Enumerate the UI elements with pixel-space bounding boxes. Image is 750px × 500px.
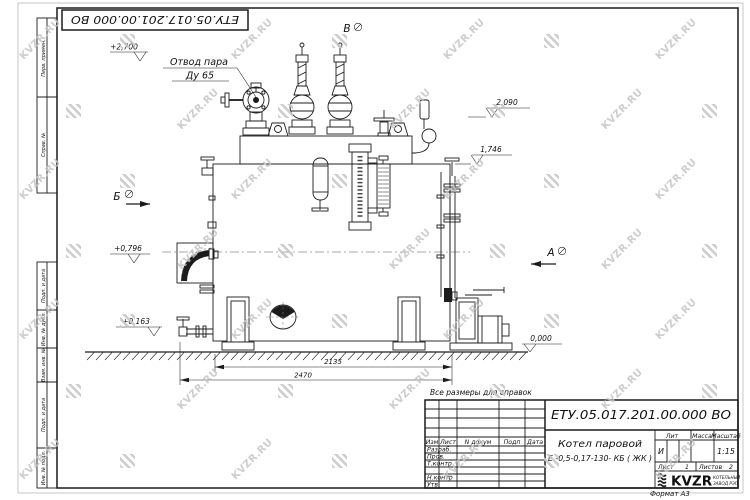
support-leg-left bbox=[222, 297, 254, 350]
wall-stub-2 bbox=[208, 222, 216, 228]
stamp-podp-data-1: Подп. и дата bbox=[41, 269, 47, 303]
stamp-podp-data-2: Подп. и дата bbox=[41, 398, 47, 432]
safety-valve-2 bbox=[327, 43, 353, 134]
feed-pump-unit bbox=[444, 287, 512, 350]
pressure-gauge bbox=[412, 100, 436, 153]
brand-logo: KVZR КОТЕЛЬНЫЙ ЗАВОД РЭП bbox=[658, 474, 741, 490]
wall-stub-1 bbox=[209, 196, 215, 200]
th-data: Дата bbox=[526, 439, 543, 446]
steam-outlet-label-1: Отвод пара bbox=[170, 57, 228, 68]
view-label-a: А bbox=[546, 247, 554, 259]
product-name-2: Е -0,5-0,17-130- КБ ( ЖК ) bbox=[548, 454, 652, 463]
drawing-sheet: Перв. примен. Справ. № Подп. и дата Инв.… bbox=[0, 0, 750, 500]
lit-value: И bbox=[658, 447, 664, 456]
scale-value: 1:15 bbox=[717, 447, 735, 456]
row-tkontr: Т.контр bbox=[427, 461, 452, 468]
th-izm: Изм bbox=[426, 439, 439, 446]
dim-2470: 2470 bbox=[294, 372, 312, 380]
sheets-word: Листов bbox=[698, 464, 722, 471]
product-name-1: Котел паровой bbox=[558, 439, 642, 450]
th-ndokum: N докум bbox=[465, 439, 492, 446]
drum-small-valve bbox=[374, 110, 394, 136]
burner-box bbox=[177, 243, 218, 293]
drain-valve bbox=[177, 317, 213, 337]
left-wall-valve bbox=[201, 157, 214, 175]
brand-name: KVZR bbox=[671, 474, 713, 490]
th-list: Лист bbox=[439, 439, 456, 446]
elev-0000: 0,000 bbox=[530, 334, 552, 343]
sheets-num: 2 bbox=[729, 464, 733, 471]
sheet-word: Лист bbox=[657, 464, 674, 471]
gauge-column-2 bbox=[377, 156, 390, 216]
brand-tagline-2: ЗАВОД РЭП bbox=[713, 481, 739, 486]
elev-0796: +0,796 bbox=[114, 244, 142, 253]
th-massa: Масса bbox=[692, 433, 712, 440]
safety-valve-1 bbox=[289, 43, 315, 134]
th-podp: Подп bbox=[504, 439, 521, 446]
doc-number-main: ЕТУ.05.017.201.00.000 ВО bbox=[551, 407, 731, 422]
view-label-g: Б bbox=[113, 191, 120, 203]
elev-0163: +0,163 bbox=[122, 317, 150, 326]
ground-line bbox=[85, 352, 528, 360]
row-prov: Пров. bbox=[427, 454, 445, 461]
stamp-perv-primen: Перв. примен. bbox=[41, 39, 47, 77]
title-block: Изм Лист N докум Подп Дата Разраб. Пров.… bbox=[425, 400, 741, 490]
elevation-marks: +2,700 2,090 1,746 +0,796 +0,163 0,000 bbox=[110, 43, 562, 353]
stamp-inv-podl: Инв. № подл. bbox=[41, 451, 47, 486]
stamp-vzam-inv: Взам. инв. № bbox=[41, 348, 47, 382]
steam-outlet-valve bbox=[221, 83, 269, 135]
sheet-num: 1 bbox=[685, 464, 689, 471]
view-label-b: В bbox=[343, 23, 350, 35]
th-lit: Лит bbox=[665, 433, 679, 440]
brand-tagline-1: КОТЕЛЬНЫЙ bbox=[713, 475, 741, 480]
level-gauge-glass bbox=[349, 144, 377, 230]
water-column bbox=[312, 158, 328, 211]
row-nkontr: Н.контр bbox=[427, 475, 453, 482]
elev-2090: 2,090 bbox=[496, 98, 518, 107]
reference-note: Все размеры для справок bbox=[430, 388, 532, 397]
doc-number-top-box: ЕТУ.05.017.201.00.000 ВО bbox=[62, 10, 248, 30]
dim-2135: 2135 bbox=[324, 358, 342, 366]
row-razrab: Разраб. bbox=[427, 446, 451, 454]
manhole bbox=[266, 302, 300, 332]
drawing-canvas: Перв. примен. Справ. № Подп. и дата Инв.… bbox=[0, 0, 750, 500]
elev-1746: 1,746 bbox=[480, 145, 502, 154]
steam-outlet-callout: Отвод пара Ду 65 bbox=[163, 57, 256, 97]
stamp-inv-dubl: Инв. № дубл. bbox=[41, 312, 47, 346]
stamp-sprav-no: Справ. № bbox=[41, 133, 47, 157]
th-masshtab: Масштаб bbox=[711, 432, 741, 440]
frame-stamps: Перв. примен. Справ. № Подп. и дата Инв.… bbox=[37, 18, 57, 488]
right-side-piping bbox=[437, 158, 460, 298]
format-note: Формат А3 bbox=[650, 490, 690, 498]
elev-2700: +2,700 bbox=[110, 43, 138, 52]
support-leg-right bbox=[393, 297, 425, 350]
boiler-drawing bbox=[85, 43, 528, 360]
lifting-lug-right bbox=[388, 123, 408, 136]
row-utv: Утв. bbox=[427, 482, 440, 489]
steam-outlet-label-2: Ду 65 bbox=[185, 71, 214, 82]
lifting-lug-left bbox=[268, 123, 288, 136]
doc-number-top: ЕТУ.05.017.201.00.000 ВО bbox=[71, 13, 239, 25]
